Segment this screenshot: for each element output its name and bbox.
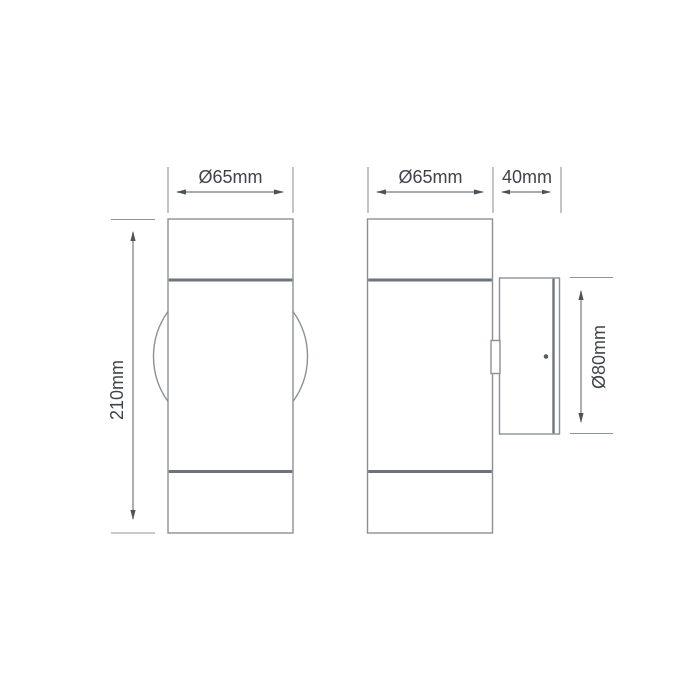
side-cylinder-body (368, 219, 493, 533)
bracket-screw-dot (544, 354, 549, 359)
bracket-connector-notch (491, 341, 500, 374)
dimension-bracket-depth: 40mm (501, 167, 561, 213)
arrowhead-left (176, 189, 186, 194)
dimension-side-diameter: Ø65mm (368, 167, 493, 213)
backplate-arc-right (293, 312, 308, 402)
arrowhead-up (578, 290, 583, 300)
height-label: 210mm (107, 360, 127, 420)
bracket-depth-label: 40mm (502, 167, 552, 187)
dimension-backplate-diameter: Ø80mm (570, 278, 613, 434)
side-view (368, 219, 560, 533)
arrowhead-right (474, 189, 484, 194)
wall-light-dimension-diagram: Ø65mm 210mm Ø65mm 40mm Ø80mm (0, 0, 700, 700)
arrowhead-right (542, 190, 551, 195)
arrowhead-left (376, 189, 386, 194)
wall-bracket-body (500, 278, 560, 434)
front-view (153, 219, 307, 533)
dimension-front-diameter: Ø65mm (168, 167, 293, 213)
arrowhead-right (274, 189, 284, 194)
arrowhead-up (130, 231, 135, 241)
front-cylinder-body (168, 219, 293, 533)
arrowhead-left (501, 190, 510, 195)
front-diameter-label: Ø65mm (198, 167, 262, 187)
arrowhead-down (130, 510, 135, 520)
backplate-arc-left (153, 312, 168, 402)
backplate-diameter-label: Ø80mm (589, 325, 609, 389)
technical-drawing-canvas: Ø65mm 210mm Ø65mm 40mm Ø80mm (0, 0, 700, 700)
side-diameter-label: Ø65mm (398, 167, 462, 187)
arrowhead-down (578, 413, 583, 423)
dimension-height: 210mm (107, 220, 155, 534)
